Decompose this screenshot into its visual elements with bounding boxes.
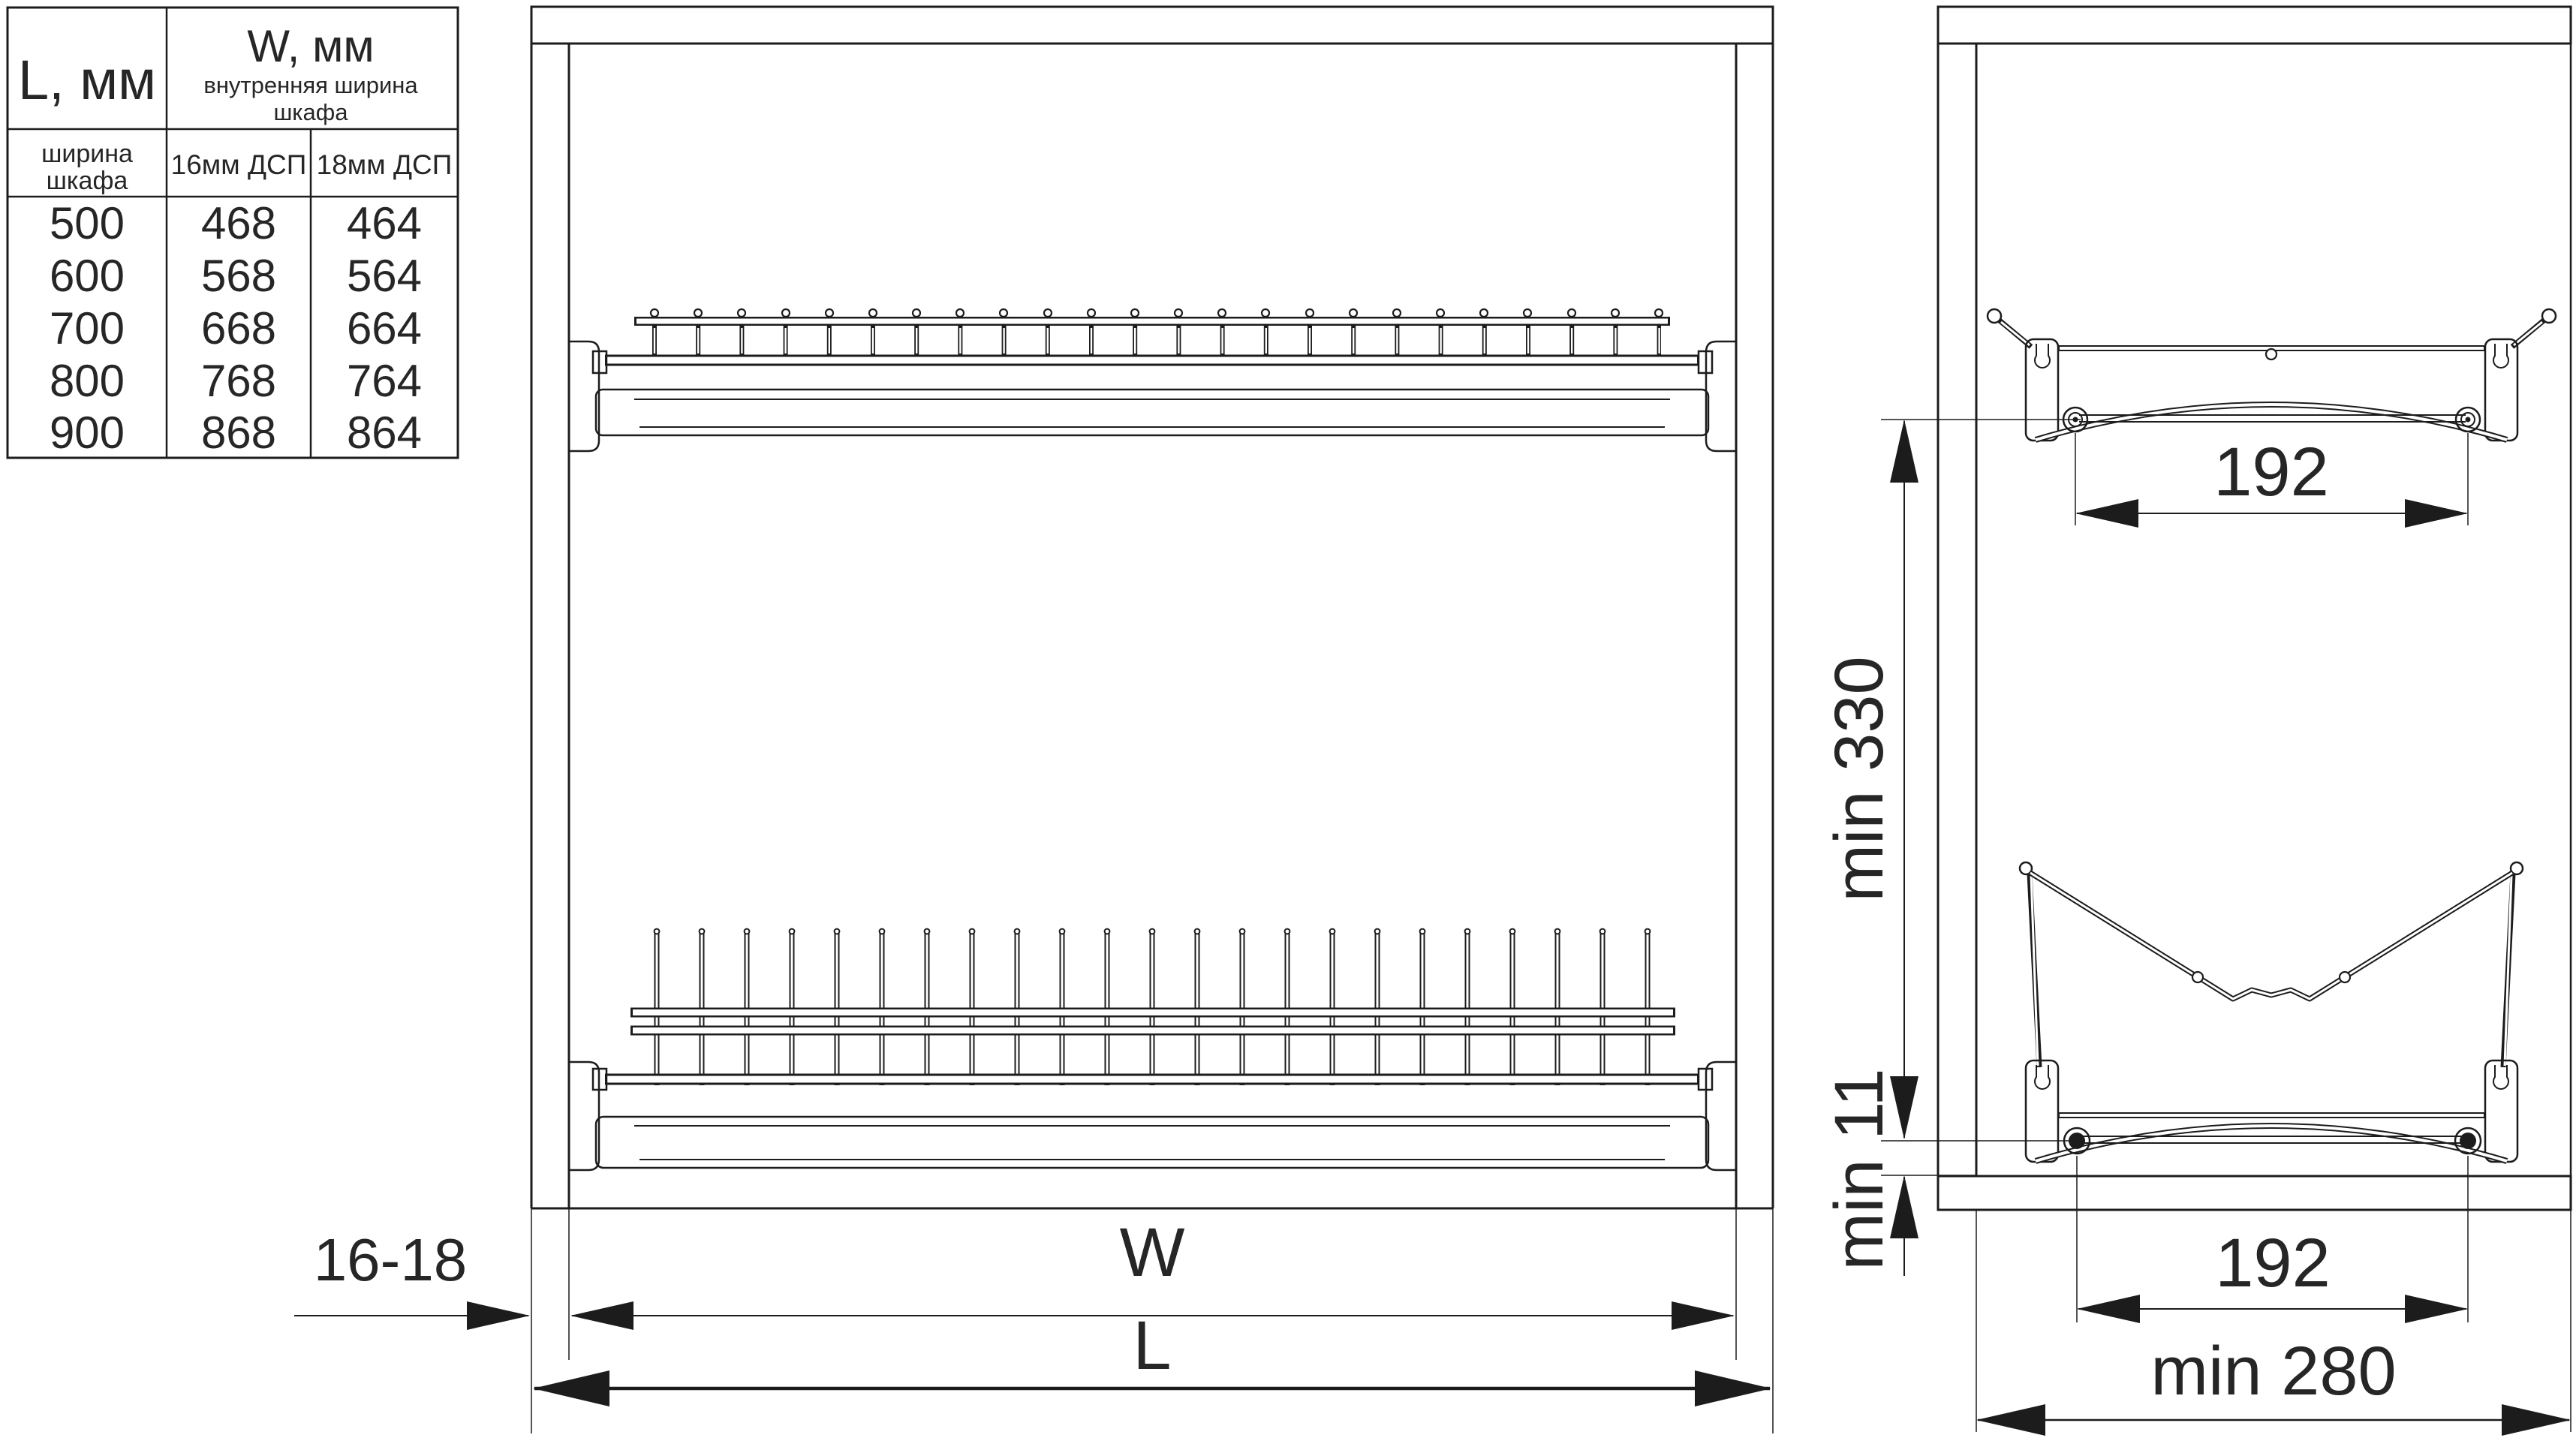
table-header-l: L, мм [18,49,156,111]
table-col-16mm: 16мм ДСП [171,149,307,180]
table-subheader-l2: шкафа [47,167,128,195]
arrowhead-right-icon [2502,1404,2571,1436]
arrowhead-right-icon [1695,1370,1771,1406]
dim-min-depth-280: min 280 [1976,1333,2571,1436]
table-row: 800 768 764 [50,356,422,406]
lower-left-keyhole [2035,1065,2050,1089]
cell-w18-564: 564 [347,251,422,301]
cell-w16-868: 868 [201,408,276,458]
dim-label-min330: min 330 [1821,656,1897,901]
cell-w16-568: 568 [201,251,276,301]
upper-left-profile [2026,339,2058,441]
upper-left-wing-tip [1988,309,2001,323]
butterfly-hole-left [2192,972,2203,982]
side-top-panel [1938,7,2571,44]
butterfly-hole-right [2340,972,2350,982]
dimension-table: L, мм W, мм внутренняя ширина шкафа шири… [8,8,458,458]
butterfly-bowtie-wire [2030,873,2512,999]
upper-drip-tray [596,390,1708,435]
dim-pitch-bottom-192: 192 [2077,1156,2468,1323]
dim-outer-width-L: L [533,1307,1771,1406]
upper-tray-section [1988,309,2556,441]
cell-w18-764: 764 [347,356,422,406]
arrowhead-left-icon [1976,1404,2045,1436]
arrowhead-up-icon [1890,420,1918,483]
side-bottom-panel [1938,1176,2571,1210]
arrowhead-right-icon [2405,499,2468,528]
upper-left-wing-core [2001,322,2030,345]
upper-rail-hole [2266,349,2277,359]
cabinet-side-outline [1938,7,2571,1432]
lower-left-bracket [569,1062,599,1170]
cell-l-500: 500 [50,198,125,248]
cell-l-700: 700 [50,303,125,353]
dim-panel-thickness: 16-18 [294,1226,530,1330]
upper-pin-caps [651,309,1663,317]
upper-dish-rack [569,309,1736,451]
dim-label-L: L [1133,1307,1171,1384]
lower-right-keyhole [2493,1065,2508,1089]
lower-right-profile [2485,1060,2517,1162]
cell-l-600: 600 [50,251,125,301]
arrowhead-left-icon [570,1301,633,1330]
table-header-w-sub2: шкафа [273,99,348,125]
lower-left-profile [2026,1060,2058,1162]
cell-l-800: 800 [50,356,125,406]
arrowhead-right-icon [1672,1301,1735,1330]
lower-right-bracket [1706,1062,1736,1170]
butterfly-bowtie-core [2030,873,2512,999]
upper-left-keyhole [2035,344,2050,368]
arrowhead-left-icon [533,1370,609,1406]
cell-w16-468: 468 [201,198,276,248]
butterfly-left-tip [2020,862,2032,874]
dim-label-W: W [1120,1214,1185,1291]
cabinet-top-panel [531,7,1773,44]
side-view: 192 min 330 min 11 192 [1821,7,2571,1436]
dim-label-192-top: 192 [2213,434,2329,510]
dim-min-height-330: min 330 [1821,420,2081,1141]
cell-w18-664: 664 [347,303,422,353]
table-row: 500 468 464 [50,198,422,248]
table-row: 600 568 564 [50,251,422,301]
butterfly-wire-holder [2020,862,2523,1067]
arrowhead-right-icon [2405,1295,2468,1323]
table-header-w-sub1: внутренняя ширина [203,72,418,98]
cell-l-900: 900 [50,408,125,458]
dim-label-192-bottom: 192 [2215,1225,2331,1301]
lower-pin-caps [655,929,1651,934]
cell-w16-668: 668 [201,303,276,353]
dim-label-16-18: 16-18 [314,1226,468,1293]
arrowhead-left-icon [2075,499,2138,528]
table-col-18mm: 18мм ДСП [317,149,453,180]
upper-right-wing-tip [2542,309,2556,323]
cell-w18-464: 464 [347,198,422,248]
upper-right-wing-core [2514,322,2542,345]
lower-dish-rack [569,929,1736,1170]
table-row: 900 868 864 [50,408,422,458]
upper-right-bracket [1706,341,1736,451]
dim-label-min280: min 280 [2150,1333,2396,1409]
table-header-w: W, мм [247,21,374,71]
arrowhead-left-icon [2077,1295,2140,1323]
lower-tray-section [2026,1060,2517,1162]
front-view: 16-18 W L [294,7,1773,1433]
table-row: 700 668 664 [50,303,422,353]
cell-w18-864: 864 [347,408,422,458]
upper-right-keyhole [2493,344,2508,368]
butterfly-right-tip [2511,862,2523,874]
dim-pitch-top-192: 192 [2075,433,2468,528]
dim-label-min11: min 11 [1821,1068,1897,1270]
dish-rack-technical-drawing: L, мм W, мм внутренняя ширина шкафа шири… [0,0,2576,1438]
upper-left-bracket [569,341,599,451]
cell-w16-768: 768 [201,356,276,406]
arrowhead-right-icon [467,1301,530,1330]
table-subheader-l1: ширина [41,140,133,168]
upper-right-profile [2485,339,2517,441]
